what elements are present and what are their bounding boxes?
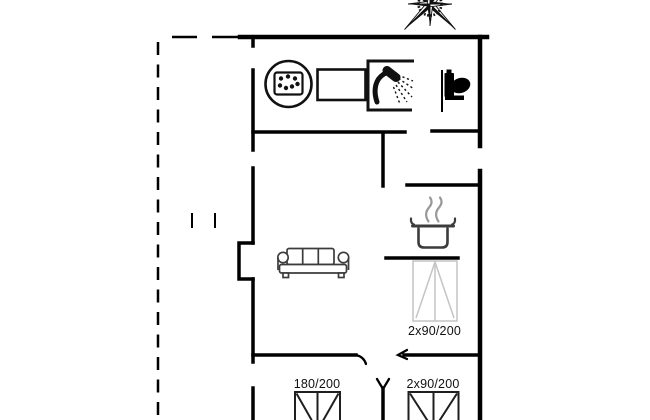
steam-icon [426,198,431,222]
double-bed-icon [409,392,459,420]
shower-icon [368,61,414,110]
spa-bath-icon [266,61,312,107]
double-bed-icon [295,392,340,420]
floor-plan-drawing [0,0,650,420]
washbasin-icon [318,70,366,101]
bed-size-label-middle-bedroom: 2x90/200 [408,324,461,338]
compass-rose-icon [405,0,456,30]
chimney-niche [239,243,253,279]
bed-size-label-bottom-right-bedroom: 2x90/200 [406,377,459,391]
double-bed-icon [413,261,457,321]
cooking-pot-icon [411,198,455,248]
bed-size-label-bottom-left-bedroom: 180/200 [294,377,341,391]
sofa-icon [278,249,349,278]
floor-plan: 2x90/200 180/200 2x90/200 [0,0,650,420]
terrace-dashed-outline [158,37,238,420]
steam-icon [436,198,441,222]
toilet-icon [445,70,473,101]
door-opening-marks [356,350,407,389]
